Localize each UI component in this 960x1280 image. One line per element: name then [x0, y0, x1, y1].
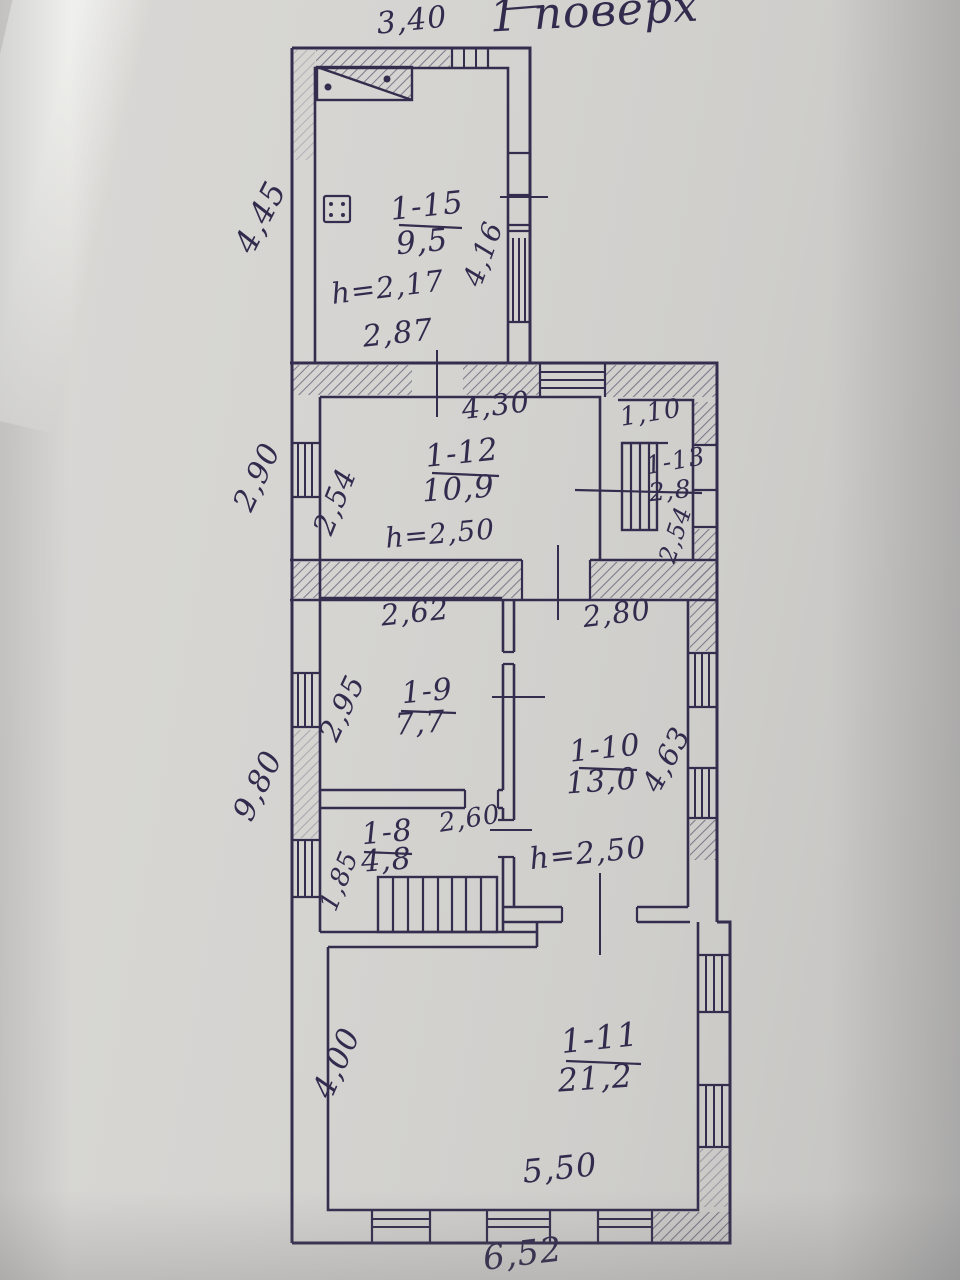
stairs-icon-room8 — [378, 877, 497, 932]
room-10-height: h=2,50 — [528, 830, 648, 877]
floorplan-drawing: 1 поверх 3,40 4,45 4,16 1-15 9,5 h=2,17 … — [0, 0, 960, 1280]
dim-room10-top: 2,80 — [580, 592, 653, 634]
room-15-id: 1-15 — [388, 184, 465, 228]
dim-room8-top: 2,60 — [436, 799, 503, 838]
room-12-area: 10,9 — [421, 469, 496, 510]
dim-top-width: 3,40 — [375, 0, 449, 42]
room-9-area: 7,7 — [394, 704, 447, 742]
dim-kitchen-right: 4,16 — [456, 217, 510, 292]
dim-room11-left: 4,00 — [305, 1022, 368, 1104]
dim-hall-left-outer: 2,90 — [226, 438, 288, 518]
dim-pantry-right: 2,54 — [653, 503, 698, 567]
masonry-hatch — [292, 50, 730, 1241]
room-8-area: 4,8 — [359, 841, 413, 880]
dim-left-lower: 9,80 — [226, 745, 290, 826]
dim-kitchen-bottom: 2,87 — [360, 312, 435, 354]
ink-dot — [384, 76, 391, 83]
room-11-id: 1-11 — [559, 1014, 641, 1061]
room-12-height: h=2,50 — [384, 512, 496, 554]
room-13-id: 1-13 — [643, 441, 707, 480]
dim-room11-bottom-inner: 5,50 — [520, 1145, 599, 1191]
dim-room9-top: 2,62 — [378, 592, 451, 633]
room-15-area: 9,5 — [395, 222, 450, 262]
dim-hall-top: 4,30 — [459, 384, 532, 426]
scanned-floor-plan-page: 1 поверх 3,40 4,45 4,16 1-15 9,5 h=2,17 … — [0, 0, 960, 1280]
dim-room8-left: 1,85 — [314, 847, 365, 916]
ink-dot — [325, 84, 332, 91]
annotations: 1 поверх 3,40 4,45 4,16 1-15 9,5 h=2,17 … — [226, 0, 708, 1279]
dim-kitchen-left: 4,45 — [226, 175, 294, 260]
room-15-height: h=2,17 — [329, 263, 446, 311]
dim-bottom-outer: 6,52 — [481, 1229, 565, 1278]
stove-icon — [324, 196, 350, 222]
page-title: 1 поверх — [488, 0, 700, 42]
room-10-area: 13,0 — [565, 762, 638, 802]
dim-hall-left-inner: 2,54 — [306, 463, 364, 540]
wall-ticks — [292, 48, 730, 1243]
room-13-area: 2,8 — [646, 474, 693, 507]
room-11-area: 21,2 — [555, 1056, 634, 1099]
